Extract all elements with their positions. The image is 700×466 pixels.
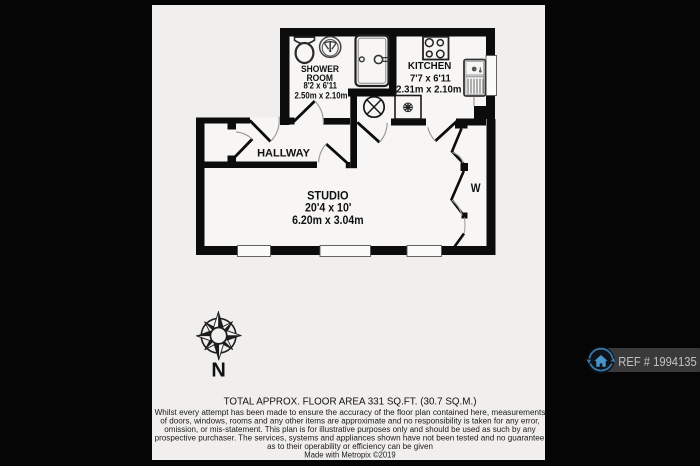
svg-text:REF # 1994135: REF # 1994135 — [618, 355, 696, 369]
svg-text:8'2 x 6'11: 8'2 x 6'11 — [304, 81, 338, 91]
svg-text:W: W — [471, 183, 481, 195]
svg-text:2.50m x 2.10m: 2.50m x 2.10m — [295, 91, 348, 101]
svg-text:STUDIO: STUDIO — [307, 188, 349, 202]
svg-text:2.31m x 2.10m: 2.31m x 2.10m — [396, 85, 461, 96]
svg-text:N: N — [211, 360, 225, 382]
svg-text:Made with Metropix ©2019: Made with Metropix ©2019 — [304, 451, 395, 460]
svg-text:KITCHEN: KITCHEN — [408, 60, 451, 72]
svg-text:TOTAL APPROX. FLOOR AREA 331 S: TOTAL APPROX. FLOOR AREA 331 SQ.FT. (30.… — [224, 397, 477, 408]
svg-text:7'7 x 6'11: 7'7 x 6'11 — [410, 73, 451, 84]
svg-text:6.20m x 3.04m: 6.20m x 3.04m — [292, 215, 364, 227]
svg-text:HALLWAY: HALLWAY — [257, 147, 311, 159]
svg-text:20'4 x 10': 20'4 x 10' — [305, 202, 352, 214]
